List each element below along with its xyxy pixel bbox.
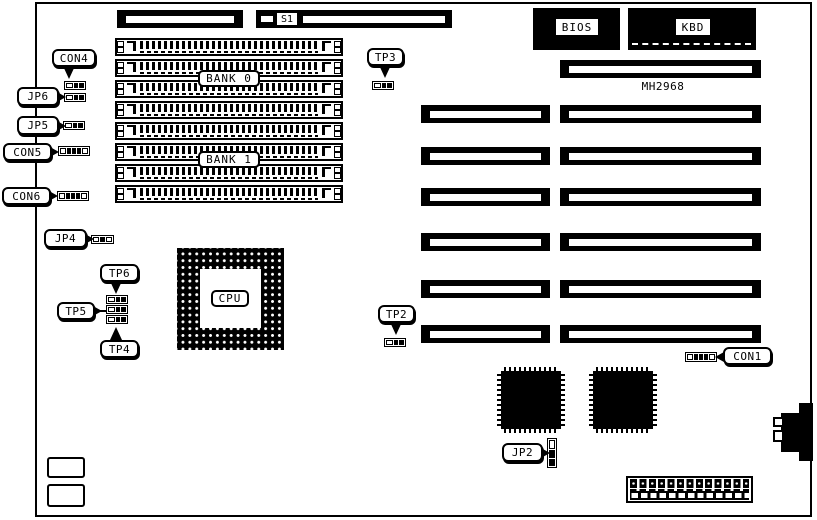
- simm-slot-1: [115, 38, 343, 56]
- callout-jp2: JP2: [502, 443, 543, 462]
- keyboard-din-connector: [771, 401, 813, 463]
- power-connector: [626, 476, 753, 503]
- jp2-pointer: [541, 448, 550, 458]
- s1-label: S1: [275, 11, 299, 27]
- expansion-slot-short-1: [421, 105, 550, 123]
- qfp-chip-2: [589, 367, 657, 433]
- kbd-socket-dash: [632, 43, 751, 45]
- tp2-pointer: [390, 322, 402, 335]
- expansion-slot-short-3: [421, 188, 550, 206]
- jp4-jumper: [91, 235, 114, 244]
- con1-jumper: [685, 352, 717, 362]
- tp4-jumper: [106, 315, 128, 324]
- expansion-slot-long-1: [560, 105, 761, 123]
- expansion-slot-long-2: [560, 147, 761, 165]
- callout-jp5: JP5: [17, 116, 59, 135]
- jp5-pointer: [57, 121, 66, 131]
- expansion-slot-short-2: [421, 147, 550, 165]
- callout-jp4: JP4: [44, 229, 87, 248]
- s1-pad: [261, 16, 273, 22]
- callout-con4: CON4: [52, 49, 96, 67]
- callout-con1: CON1: [723, 347, 772, 365]
- expansion-slot-long-0: [560, 60, 761, 78]
- con4-jumper: [64, 81, 86, 90]
- callout-con6: CON6: [2, 187, 51, 205]
- top-edge-slot-1: [117, 10, 243, 28]
- callout-tp3: TP3: [367, 48, 404, 66]
- tp6-jumper: [106, 295, 128, 304]
- tp3-jumper: [372, 81, 394, 90]
- expansion-slot-short-6: [421, 325, 550, 343]
- tp6-pointer: [110, 281, 122, 294]
- con4-pointer: [63, 66, 75, 79]
- tp2-jumper: [384, 338, 406, 347]
- jp6-pointer: [57, 92, 66, 102]
- tp5-pointer: [93, 306, 102, 316]
- qfp-chip-1: [497, 367, 565, 433]
- con6-jumper: [57, 191, 89, 201]
- expansion-slot-long-5: [560, 280, 761, 298]
- bios-chip-label: BIOS: [556, 19, 598, 35]
- expansion-slot-long-6: [560, 325, 761, 343]
- con5-pointer: [50, 147, 59, 157]
- simm-slot-4: [115, 101, 343, 119]
- cpu-label: CPU: [211, 290, 249, 307]
- callout-tp6: TP6: [100, 264, 139, 282]
- callout-tp4: TP4: [100, 340, 139, 358]
- mh2968-label: MH2968: [634, 80, 692, 93]
- expansion-slot-long-3: [560, 188, 761, 206]
- con5-jumper: [58, 146, 90, 156]
- solder-pad-2: [47, 484, 85, 507]
- expansion-slot-short-4: [421, 233, 550, 251]
- con6-pointer: [49, 191, 58, 201]
- tp3-pointer: [379, 65, 391, 78]
- simm-slot-5: [115, 122, 343, 140]
- tp4-pointer: [110, 327, 122, 340]
- jp6-jumper: [64, 93, 86, 102]
- callout-jp6: JP6: [17, 87, 59, 106]
- bank0-label: BANK 0: [198, 70, 260, 87]
- solder-pad-1: [47, 457, 85, 478]
- simm-slot-8: [115, 185, 343, 203]
- motherboard-diagram: S1 BIOS KBD MH2968 BANK 0 BANK 1 CPU CON…: [0, 0, 817, 520]
- kbd-chip-label: KBD: [676, 19, 710, 35]
- expansion-slot-short-5: [421, 280, 550, 298]
- callout-tp5: TP5: [57, 302, 95, 320]
- jp5-jumper: [63, 121, 85, 130]
- tp5-jumper: [106, 305, 128, 314]
- callout-con5: CON5: [3, 143, 52, 161]
- bank1-label: BANK 1: [198, 151, 260, 168]
- jp4-pointer: [85, 234, 94, 244]
- expansion-slot-long-4: [560, 233, 761, 251]
- callout-tp2: TP2: [378, 305, 415, 323]
